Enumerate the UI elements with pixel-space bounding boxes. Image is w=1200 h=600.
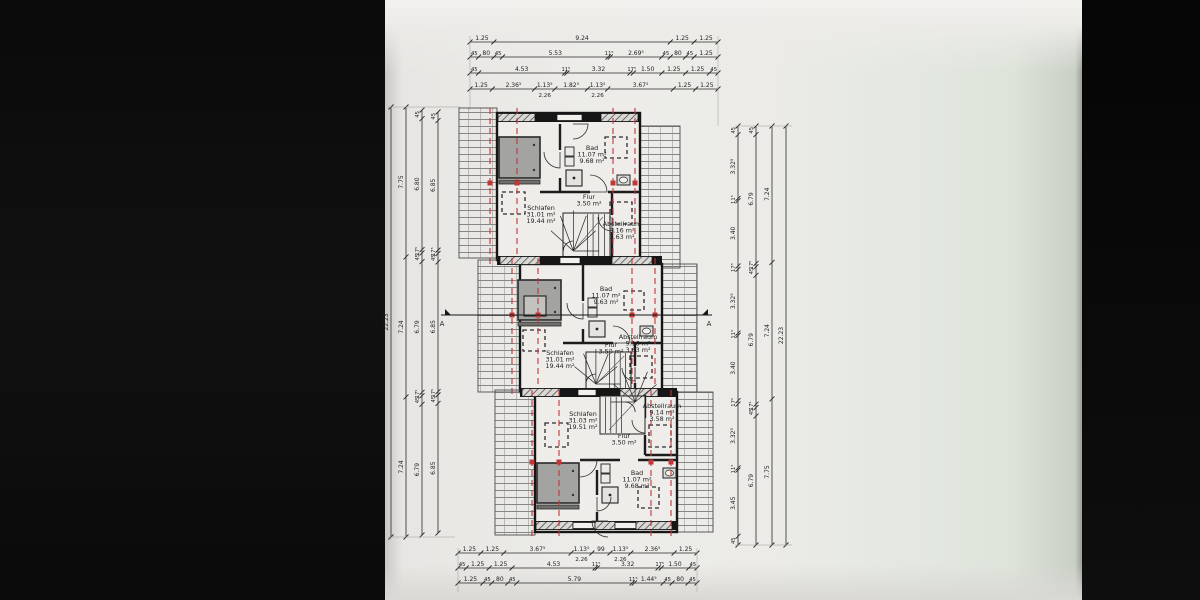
section-label-right: A: [707, 320, 712, 328]
dim-label: 17⁵: [731, 398, 737, 407]
room-label: Schlafen31.01 m²19.44 m²: [526, 204, 556, 225]
dim-label: 3.32: [592, 66, 606, 73]
dim-label: 45: [731, 127, 737, 134]
dim-label: 45: [509, 577, 516, 583]
dim-label: 3.32⁵: [730, 428, 737, 444]
dimension-chain: 1.259.241.251.25: [468, 35, 721, 45]
roof-hatch: [677, 392, 713, 532]
dim-label: 45: [484, 577, 491, 583]
dim-label: 7.24: [764, 187, 771, 201]
dim-label: 80: [676, 576, 684, 583]
dim-label: 22.23: [383, 313, 390, 330]
section-marker-red: [515, 181, 520, 186]
dim-label: 3.67⁵: [633, 82, 649, 89]
dim-label: 11⁵: [605, 51, 614, 57]
dim-label: 3.32⁵: [730, 293, 737, 309]
dim-label: 45: [689, 577, 696, 583]
dim-label: 1.25: [699, 35, 713, 42]
dim-label: 1.25: [699, 50, 713, 57]
dim-label: 45: [731, 537, 737, 544]
section-marker-red: [530, 460, 535, 465]
dim-label: 45: [663, 51, 670, 57]
roof-hatch: [495, 390, 535, 535]
dim-sub-label: 2.26: [575, 557, 588, 563]
dim-label: 11⁵: [731, 330, 737, 339]
dim-label: 1.13⁵: [590, 82, 606, 89]
section-marker-red: [488, 181, 493, 186]
dim-label: 45: [749, 127, 755, 134]
section-marker-red: [669, 460, 674, 465]
dim-label: 11⁵: [731, 465, 737, 474]
dim-label: 11⁵: [561, 67, 570, 73]
dim-label: 1.50: [668, 561, 682, 568]
section-marker-red: [649, 460, 654, 465]
dim-label: 11⁵: [731, 195, 737, 204]
dim-label: 45: [749, 409, 755, 416]
floor-plan-drawing: 1.259.241.251.254580455.5311⁵2.69⁵458045…: [0, 0, 1200, 600]
dim-label: 3.40: [730, 226, 737, 240]
dim-label: 6.79: [748, 333, 755, 347]
dim-label: 17⁵: [655, 562, 664, 568]
dim-label: 1.25: [475, 35, 489, 42]
dim-label: 1.25: [494, 561, 508, 568]
dim-label: 6.79: [748, 192, 755, 206]
dim-label: 45: [415, 397, 421, 404]
dim-label: 4.53: [515, 66, 529, 73]
dim-label: 1.25: [700, 82, 714, 89]
dim-label: 45: [431, 396, 437, 403]
roof-window-dark: [499, 137, 540, 178]
dim-label: 1.13⁵: [574, 546, 590, 553]
roof-hatch: [662, 264, 697, 392]
dim-label: 45: [495, 51, 502, 57]
dim-label: 45: [687, 51, 694, 57]
dimension-chain: 1.252.36⁵1.13⁵1.82⁵1.13⁵3.67⁵1.251.252.2…: [468, 82, 721, 99]
dim-label: 3.67⁵: [530, 546, 546, 553]
dim-label: 1.25: [486, 546, 500, 553]
dim-label: 9.24: [575, 35, 589, 42]
dim-label: 1.25: [667, 66, 681, 73]
dimension-chain: 22.23: [778, 124, 789, 548]
dim-label: 1.82⁵: [563, 82, 579, 89]
dim-label: 1.25: [463, 546, 477, 553]
dim-label: 99: [597, 546, 605, 553]
dimension-chain: 22.23: [383, 105, 394, 540]
dim-label: 1.25: [679, 546, 693, 553]
dim-label: 45: [471, 51, 478, 57]
dim-label: 45: [415, 254, 421, 261]
section-marker-red: [633, 181, 638, 186]
dim-label: 45: [459, 562, 466, 568]
dim-label: 4.53: [547, 561, 561, 568]
roof-hatch: [478, 260, 520, 392]
dimension-chain: 456.8017⁵456.7917⁵456.79: [414, 108, 425, 538]
dim-label: 45: [415, 111, 421, 118]
dim-sub-label: 2.26: [538, 93, 551, 99]
dim-label: 45: [664, 577, 671, 583]
dim-label: 11⁵: [592, 562, 601, 568]
section-marker-red: [611, 181, 616, 186]
dim-label: 7.24: [398, 460, 405, 474]
section-label-left: A: [440, 320, 445, 328]
dim-label: 1.25: [474, 82, 488, 89]
dim-label: 22.23: [778, 327, 785, 344]
dim-label: 2.36⁵: [645, 546, 661, 553]
dim-label: 3.40: [730, 361, 737, 375]
dim-label: 1.13⁵: [537, 82, 553, 89]
dim-label: 3.32⁵: [730, 158, 737, 174]
dim-label: 6.80: [414, 177, 421, 191]
dim-label: 45: [431, 254, 437, 261]
dim-label: 45: [431, 113, 437, 120]
dimension-chain: 1.251.253.67⁵1.13⁵991.13⁵2.36⁵1.252.262.…: [456, 546, 700, 563]
dim-label: 6.79: [414, 320, 421, 334]
dim-label: 1.50: [641, 66, 655, 73]
dim-label: 5.53: [549, 50, 563, 57]
dim-label: 7.24: [764, 324, 771, 338]
section-marker-red: [557, 460, 562, 465]
dim-label: 7.24: [398, 320, 405, 334]
dimension-chain: 456.7917⁵456.7917⁵456.79: [748, 124, 759, 548]
room-label: Schlafen31.01 m²19.44 m²: [545, 349, 575, 370]
dim-label: 45: [690, 562, 697, 568]
dim-label: 3.45: [730, 496, 737, 510]
roof-window-dark: [537, 463, 579, 503]
dim-label: 6.85: [430, 461, 437, 475]
dim-label: 3.32: [621, 561, 635, 568]
dim-label: 6.79: [414, 463, 421, 477]
dimension-chain: 7.247.247.75: [764, 124, 775, 548]
dimension-chain: 454.5311⁵3.3217⁵1.501.251.2545: [468, 66, 721, 76]
dim-label: 5.79: [568, 576, 582, 583]
photo-of-screen: { "drawing": { "type": "floor-plan", "la…: [0, 0, 1200, 600]
dimension-chain: 4580455.5311⁵2.69⁵4580451.25: [468, 50, 721, 60]
dim-label: 1.13⁵: [613, 546, 629, 553]
dim-label: 6.85: [430, 178, 437, 192]
dim-label: 45: [749, 268, 755, 275]
dim-label: 17⁵: [731, 263, 737, 272]
dim-label: 6.85: [430, 320, 437, 334]
dim-label: 1.44⁵: [641, 576, 657, 583]
dim-label: 80: [496, 576, 504, 583]
dimension-chain: 453.32⁵11⁵3.4017⁵3.32⁵11⁵3.4017⁵3.32⁵11⁵…: [730, 124, 741, 548]
roof-hatch: [640, 126, 680, 268]
dim-label: 11⁵: [629, 577, 638, 583]
dim-label: 1.25: [676, 35, 690, 42]
dim-label: 1.25: [678, 82, 692, 89]
dim-label: 1.25: [691, 66, 705, 73]
dim-sub-label: 2.26: [591, 93, 604, 99]
dim-label: 80: [674, 50, 682, 57]
room-label: Schlafen31.03 m²19.51 m²: [568, 410, 598, 431]
dim-label: 80: [482, 50, 490, 57]
dim-label: 6.79: [748, 474, 755, 488]
dim-label: 2.69⁵: [628, 50, 644, 57]
dim-label: 45: [471, 67, 478, 73]
dim-label: 1.25: [464, 576, 478, 583]
dimension-chain: 1.254580455.7911⁵1.44⁵458045: [456, 576, 700, 586]
dim-label: 45: [710, 67, 717, 73]
dim-label: 7.75: [764, 465, 771, 479]
dimension-chain: 7.757.247.24: [398, 105, 409, 540]
dim-label: 1.25: [471, 561, 485, 568]
dim-label: 2.36⁵: [506, 82, 522, 89]
dim-label: 17⁵: [627, 67, 636, 73]
dim-label: 7.75: [398, 175, 405, 189]
